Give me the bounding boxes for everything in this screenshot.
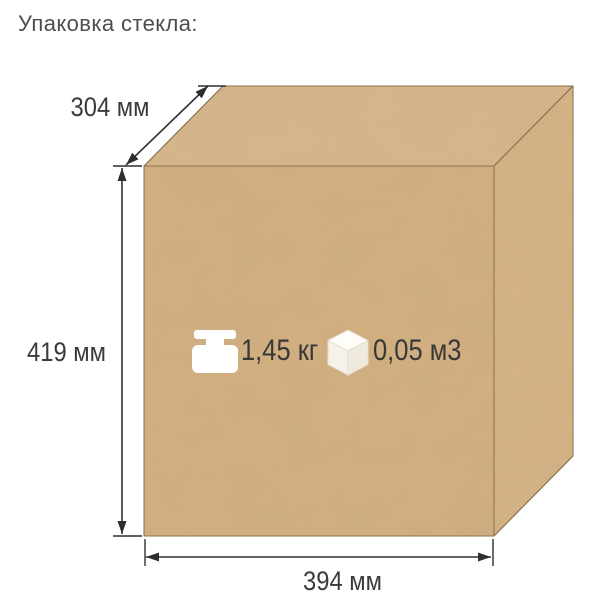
box-diagram: [0, 0, 600, 600]
volume-value: 0,05 м3: [373, 334, 461, 368]
width-dimension-label: 394 мм: [296, 566, 388, 597]
page-title: Упаковка стекла:: [18, 11, 198, 37]
weight-value: 1,45 кг: [241, 334, 318, 368]
cardboard-texture: [130, 70, 590, 550]
height-dimension-label: 419 мм: [27, 337, 101, 368]
packaging-diagram: Упаковка стекла: 304 мм 419 мм 394 мм 1,…: [0, 0, 600, 600]
depth-dimension-label: 304 мм: [66, 92, 154, 123]
weight-icon: [192, 330, 238, 373]
